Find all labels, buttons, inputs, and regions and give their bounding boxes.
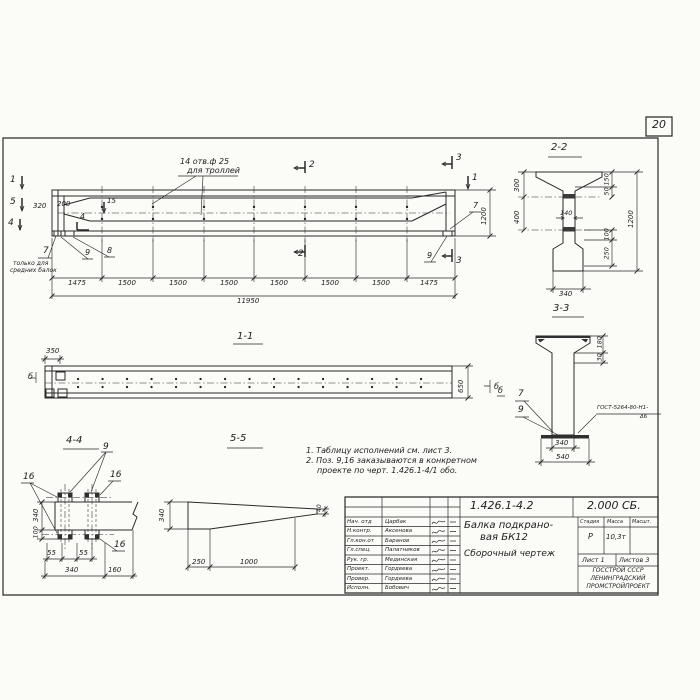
tb-name-8: Бобович	[385, 586, 409, 592]
tb-name-2: Аксенова	[385, 529, 412, 535]
section33-pos-7: 7	[518, 390, 524, 399]
holes-note-line2: для троллей	[187, 167, 240, 175]
section55-title: 5-5	[230, 434, 246, 444]
section44-pos-16-bottom: 16	[114, 541, 125, 550]
tb-name-6: Гордеева	[385, 567, 412, 573]
section11-ticks	[43, 357, 471, 401]
weld-note-line2: Δ6	[640, 415, 647, 421]
cut-mark-3-bottom: 3	[456, 257, 462, 266]
chain-dim-6: 1500	[316, 280, 344, 287]
weld-note-line1: ГОСТ-5264-80-Н1-	[597, 406, 648, 412]
doc-type: Сборочный чертеж	[464, 550, 555, 559]
page-number: 20	[649, 119, 669, 130]
org-line-2: ЛЕНИНГРАДСКИЙ	[578, 576, 658, 582]
section44-dim-340b: 340	[65, 567, 78, 574]
section22-dim-300: 300	[514, 179, 521, 192]
tb-role-8: Исполн.	[347, 586, 370, 592]
note-line-3: проекте по черт. 1.426.1-4/1 обо.	[317, 467, 457, 475]
section55-outline	[188, 502, 317, 529]
section22-dim-150: 150	[604, 173, 611, 185]
end-note-line2: средних балок	[10, 268, 57, 274]
section11-mark-left: б	[28, 373, 33, 381]
pos-label-9-right: 9	[427, 252, 432, 260]
section22-dim-50: 50	[604, 187, 611, 195]
section33-dim-30: 30	[597, 353, 604, 361]
section33-dim-540: 540	[556, 454, 569, 461]
section11-dim-350: 350	[46, 348, 59, 355]
section44-pos-16-top: 16	[110, 471, 121, 480]
pos-label-7-right: 7	[473, 202, 478, 210]
section55-dim-250: 250	[192, 559, 205, 566]
section33-dim-340: 340	[555, 440, 568, 447]
stage-value: Р	[588, 533, 593, 541]
sheet-frame	[3, 117, 672, 595]
col-header-scale: Масшт.	[632, 520, 651, 525]
cut-mark-3-top: 3	[456, 154, 462, 163]
section55-dims	[164, 448, 329, 571]
section22-dim-140: 140	[560, 210, 572, 217]
tb-name-7: Гордеева	[385, 577, 412, 583]
product-title-line2: вая БК12	[480, 533, 528, 543]
col-header-stage: Стадия	[580, 520, 599, 525]
section55-dim-340: 340	[159, 509, 166, 522]
section55-dim-1000: 1000	[240, 559, 258, 566]
section33-dim-180: 180	[597, 336, 604, 348]
pos-label-4: 4	[80, 213, 85, 221]
section44-outline	[55, 493, 138, 539]
tb-name-4: Палатников	[385, 548, 420, 554]
chain-dim-8: 1475	[415, 280, 443, 287]
cut-mark-2-bottom: 2	[298, 250, 304, 259]
tb-role-4: Гл.спец.	[347, 548, 371, 554]
chain-dim-2: 1500	[113, 280, 141, 287]
sheet-count: Листов 3	[619, 557, 649, 564]
total-length-dim: 11950	[237, 298, 259, 305]
section44-dim-55a: 55	[47, 550, 56, 557]
col-header-mass: Масса	[607, 520, 623, 525]
tb-role-3: Гл.кон.от	[347, 539, 374, 545]
tb-role-7: Провер.	[347, 577, 370, 583]
section44-bolt-lines	[61, 489, 96, 543]
pos-label-8-left: 8	[107, 247, 112, 255]
section55-dim-40: 40	[317, 504, 323, 512]
cut-mark-2-top: 2	[309, 161, 315, 170]
section11-title: 1-1	[237, 332, 253, 342]
main-cut-marks	[20, 156, 468, 262]
section33-fills	[536, 336, 590, 439]
section44-centerlines	[42, 484, 114, 550]
chain-dim-4: 1500	[215, 280, 243, 287]
note-line-1: 1. Таблицу исполнений см. лист 3.	[306, 447, 452, 455]
dim-200: 200	[57, 201, 70, 208]
tb-name-3: Баранов	[385, 539, 409, 545]
section22-dim-340: 340	[559, 291, 572, 298]
tb-role-5: Рук. гр.	[347, 558, 369, 564]
cut-mark-5-left: 5	[10, 198, 16, 207]
main-centerlines	[58, 186, 450, 242]
pos-label-9-left: 9	[85, 249, 90, 257]
section11-outline	[45, 366, 452, 398]
signature-squiggles	[432, 521, 456, 591]
section44-anchor-squares	[58, 493, 99, 539]
section22-dim-400: 400	[514, 211, 521, 224]
section33-profile	[536, 336, 590, 435]
product-title-line1: Балка подкрано-	[464, 521, 553, 531]
holes-note-line1: 14 отв.ф 25	[180, 158, 229, 166]
section22-dim-1200: 1200	[628, 210, 635, 228]
section33-title: 3-3	[553, 304, 569, 314]
tb-name-1: Царбак	[385, 520, 406, 526]
tb-name-5: Мединская	[385, 558, 417, 564]
dim-1200-main: 1200	[481, 207, 488, 225]
section44-dim-55b: 55	[79, 550, 88, 557]
section22-dim-250: 250	[604, 247, 611, 259]
cut-mark-4-left: 4	[8, 219, 14, 228]
cut-mark-1-left: 1	[10, 176, 16, 185]
tb-role-2: Н.контр.	[347, 529, 372, 535]
section22-title: 2-2	[551, 143, 567, 153]
doc-number: 1.426.1-4.2	[470, 500, 533, 511]
dim-320: 320	[33, 203, 46, 210]
main-arrowheads	[18, 162, 470, 258]
cut-mark-1-right: 1	[472, 174, 478, 183]
doc-code: 2.000 СБ.	[587, 500, 641, 511]
dim-15: 15	[107, 198, 116, 205]
org-line-3: ПРОМСТРОЙПРОЕКТ	[578, 584, 658, 590]
chain-dim-5: 1500	[265, 280, 293, 287]
section33-pos-9: 9	[518, 406, 524, 415]
section44-dim-160: 160	[108, 567, 121, 574]
drawing-sheet: 20 14 отв.ф 25 для троллей 1 5 4 320 200…	[0, 0, 700, 700]
chain-dim-1: 1475	[63, 280, 91, 287]
sheet-number: Лист 1	[582, 557, 605, 564]
section22-dim-100: 100	[604, 228, 611, 240]
drawing-linework	[0, 0, 700, 700]
section44-title: 4-4	[66, 436, 82, 446]
tb-role-6: Проект.	[347, 567, 370, 573]
chain-dim-3: 1500	[164, 280, 192, 287]
end-note-number: 7	[43, 247, 49, 256]
section44-pos-9: 9	[103, 443, 109, 452]
section44-dim-340v: 340	[33, 509, 40, 522]
section11-dim-650: 650	[458, 380, 465, 393]
mass-value: 10,3т	[606, 534, 626, 541]
main-trolley-holes	[101, 206, 408, 220]
section33-mark-b: б	[498, 387, 503, 395]
section44-pos-16-left: 16	[23, 473, 34, 482]
section44-dim-100: 100	[33, 526, 40, 538]
tb-role-1: Нач. отд	[347, 520, 372, 526]
org-line-1: ГОССТРОЙ СССР	[578, 568, 658, 574]
note-line-2: 2. Поз. 9,16 заказываются в конкретном	[306, 457, 477, 465]
chain-dim-7: 1500	[367, 280, 395, 287]
